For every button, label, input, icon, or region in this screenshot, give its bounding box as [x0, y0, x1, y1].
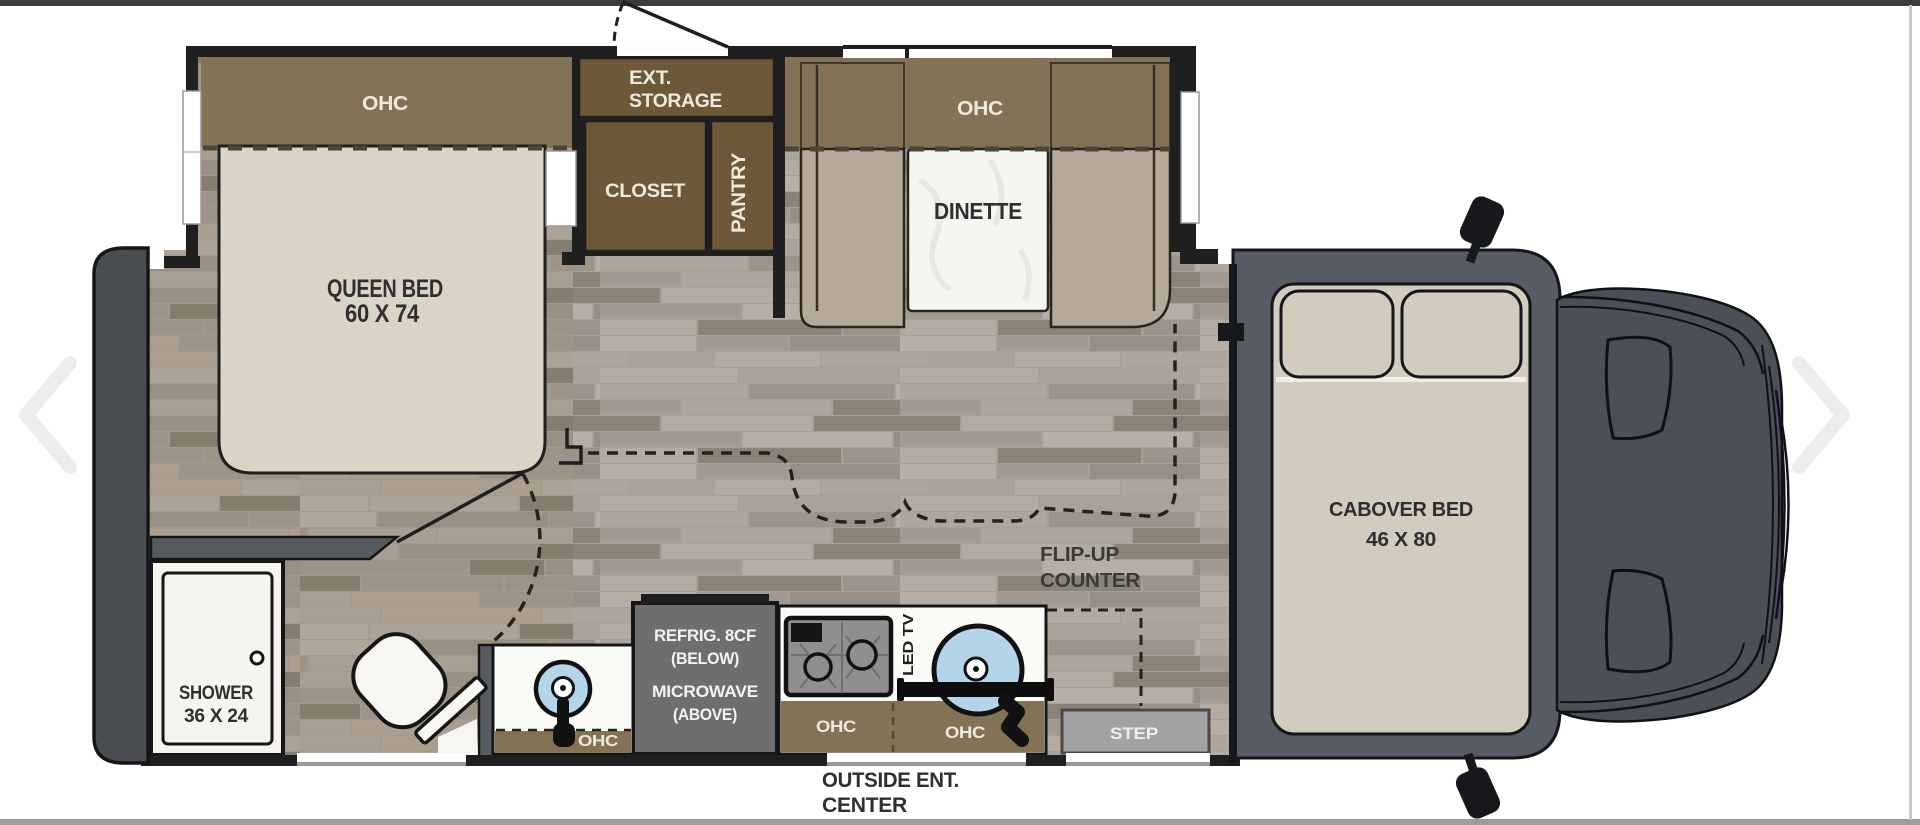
svg-text:46 X 80: 46 X 80 [1366, 529, 1436, 551]
svg-text:OHC: OHC [957, 98, 1003, 120]
svg-text:SHOWER: SHOWER [179, 683, 254, 704]
svg-text:STORAGE: STORAGE [629, 91, 722, 112]
svg-text:STEP: STEP [1110, 724, 1158, 743]
svg-text:60 X 74: 60 X 74 [345, 300, 419, 328]
svg-text:(ABOVE): (ABOVE) [673, 705, 737, 724]
svg-text:QUEEN BED: QUEEN BED [327, 275, 443, 303]
svg-text:36 X 24: 36 X 24 [184, 706, 249, 727]
svg-text:REFRIG. 8CF: REFRIG. 8CF [654, 626, 756, 645]
svg-text:OHC: OHC [816, 717, 856, 736]
svg-text:COUNTER: COUNTER [1040, 570, 1141, 592]
svg-text:PANTRY: PANTRY [729, 152, 750, 233]
svg-text:CLOSET: CLOSET [605, 181, 686, 202]
svg-text:DINETTE: DINETTE [934, 198, 1022, 224]
svg-text:MICROWAVE: MICROWAVE [652, 682, 758, 701]
svg-text:LED TV: LED TV [900, 614, 917, 676]
svg-text:CABOVER BED: CABOVER BED [1329, 499, 1473, 521]
svg-text:CENTER: CENTER [822, 794, 907, 817]
svg-text:EXT.: EXT. [629, 68, 671, 89]
svg-text:(BELOW): (BELOW) [671, 649, 739, 668]
svg-text:FLIP-UP: FLIP-UP [1040, 544, 1119, 566]
svg-text:OUTSIDE ENT.: OUTSIDE ENT. [822, 769, 959, 792]
svg-text:OHC: OHC [578, 733, 619, 750]
svg-text:OHC: OHC [362, 93, 408, 115]
svg-text:OHC: OHC [945, 723, 985, 742]
